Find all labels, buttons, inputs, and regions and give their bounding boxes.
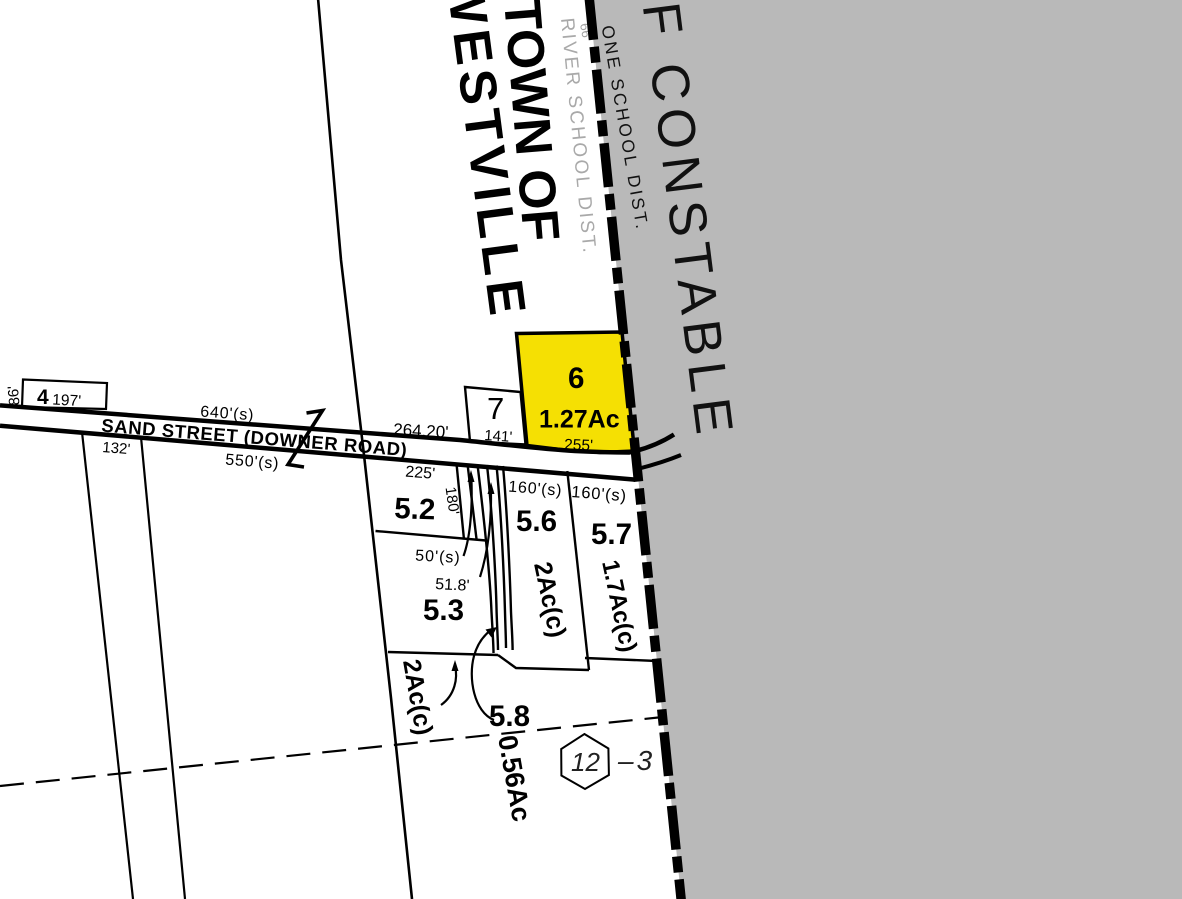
svg-text:86': 86' bbox=[5, 385, 24, 406]
svg-text:12: 12 bbox=[571, 747, 600, 777]
svg-text:1.27Ac: 1.27Ac bbox=[539, 406, 620, 434]
svg-text:51.8': 51.8' bbox=[435, 576, 470, 595]
svg-text:197': 197' bbox=[52, 392, 82, 410]
svg-text:264.20': 264.20' bbox=[393, 420, 449, 442]
svg-text:5.3: 5.3 bbox=[423, 594, 464, 627]
svg-text:225': 225' bbox=[405, 464, 436, 483]
svg-text:4: 4 bbox=[37, 386, 49, 409]
svg-text:–3: –3 bbox=[617, 745, 655, 776]
svg-text:5.6: 5.6 bbox=[516, 505, 557, 538]
svg-text:7: 7 bbox=[487, 391, 504, 426]
svg-text:5.7: 5.7 bbox=[591, 518, 632, 551]
svg-text:132': 132' bbox=[102, 439, 131, 458]
svg-text:6: 6 bbox=[568, 362, 584, 395]
svg-text:5.2: 5.2 bbox=[394, 492, 436, 526]
svg-text:141': 141' bbox=[484, 427, 513, 446]
svg-text:5.8: 5.8 bbox=[489, 700, 530, 733]
svg-text:50'(s): 50'(s) bbox=[415, 548, 461, 567]
